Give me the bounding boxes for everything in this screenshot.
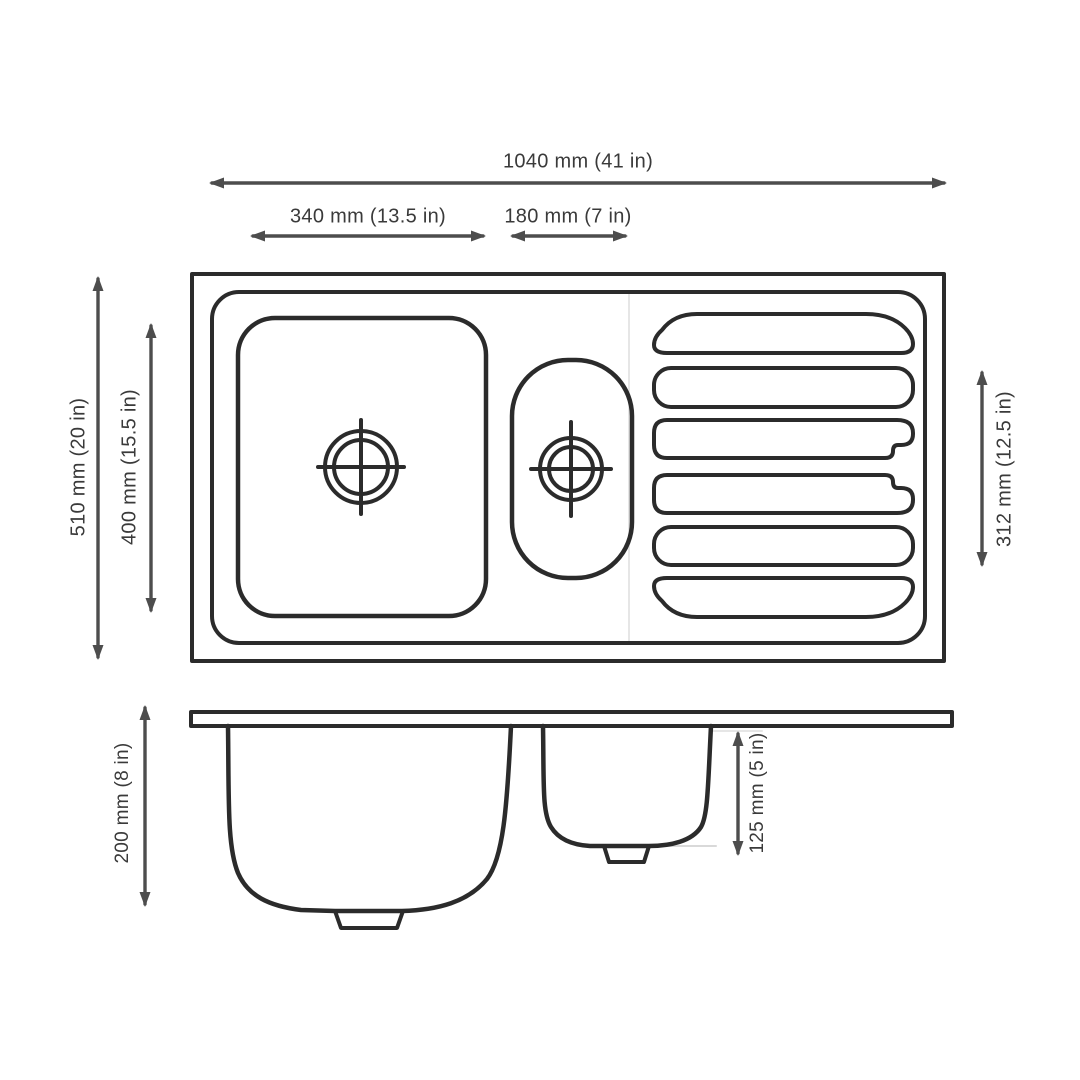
dim-arrow-main-bowl-height <box>140 705 151 907</box>
half-bowl-drain-fitting <box>604 846 649 862</box>
drainboard-rib-2 <box>654 368 913 407</box>
main-bowl-profile <box>228 726 511 911</box>
main-bowl-drain-icon <box>318 420 404 514</box>
half-bowl-drain-icon <box>531 422 611 516</box>
drainboard-rib-5 <box>654 527 913 565</box>
main-bowl-drain-fitting <box>335 911 403 928</box>
drainboard-rib-3 <box>654 420 913 458</box>
sink-side-view <box>191 712 952 928</box>
dim-label-overall-width: 1040 mm (41 in) <box>503 151 653 174</box>
dim-label-drainboard-length: 312 mm (12.5 in) <box>994 391 1017 547</box>
dim-arrow-half-bowl-height <box>733 731 744 856</box>
dim-label-overall-depth: 510 mm (20 in) <box>68 398 91 537</box>
sink-top-view <box>192 274 944 661</box>
drainboard <box>654 314 913 617</box>
dim-arrow-main-bowl-depth <box>146 323 157 613</box>
rim-profile <box>191 712 952 726</box>
dim-label-main-bowl-depth: 400 mm (15.5 in) <box>119 389 142 545</box>
sink-dimension-diagram: 1040 mm (41 in) 340 mm (13.5 in) 180 mm … <box>0 0 1080 1080</box>
half-bowl-profile <box>543 726 711 846</box>
dim-arrow-half-bowl-width <box>510 231 628 242</box>
dim-arrow-drainboard-length <box>977 370 988 567</box>
dim-arrow-overall-width <box>209 178 947 189</box>
drainboard-rib-6 <box>654 578 913 617</box>
dim-label-half-bowl-height: 125 mm (5 in) <box>747 732 769 853</box>
dim-arrow-overall-depth <box>93 276 104 660</box>
drainboard-rib-1 <box>654 314 913 353</box>
dim-label-main-bowl-height: 200 mm (8 in) <box>112 742 134 863</box>
dim-arrow-main-bowl-width <box>250 231 486 242</box>
dim-label-main-bowl-width: 340 mm (13.5 in) <box>290 206 446 229</box>
drainboard-rib-4 <box>654 475 913 513</box>
dim-label-half-bowl-width: 180 mm (7 in) <box>504 206 631 229</box>
